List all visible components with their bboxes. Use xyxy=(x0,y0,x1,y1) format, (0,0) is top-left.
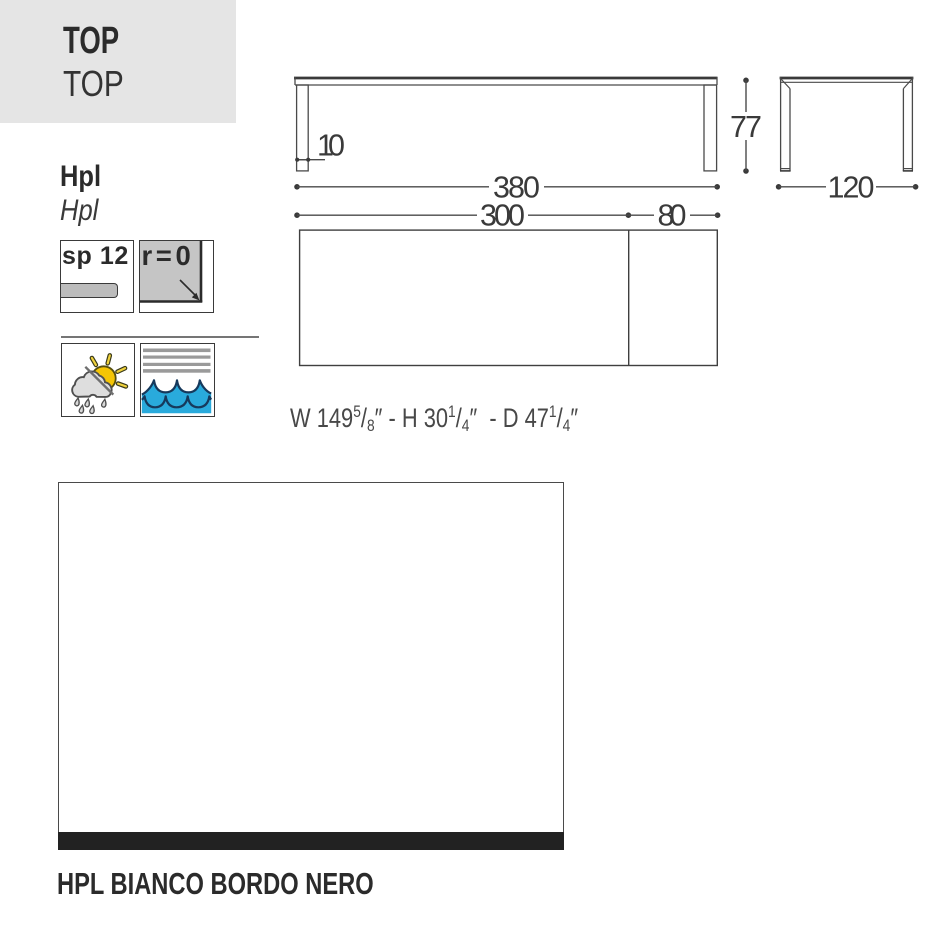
svg-text:80: 80 xyxy=(658,199,687,233)
svg-text:300: 300 xyxy=(480,199,525,233)
svg-text:10: 10 xyxy=(317,129,345,163)
svg-text:77: 77 xyxy=(730,110,762,144)
svg-text:120: 120 xyxy=(828,170,875,204)
